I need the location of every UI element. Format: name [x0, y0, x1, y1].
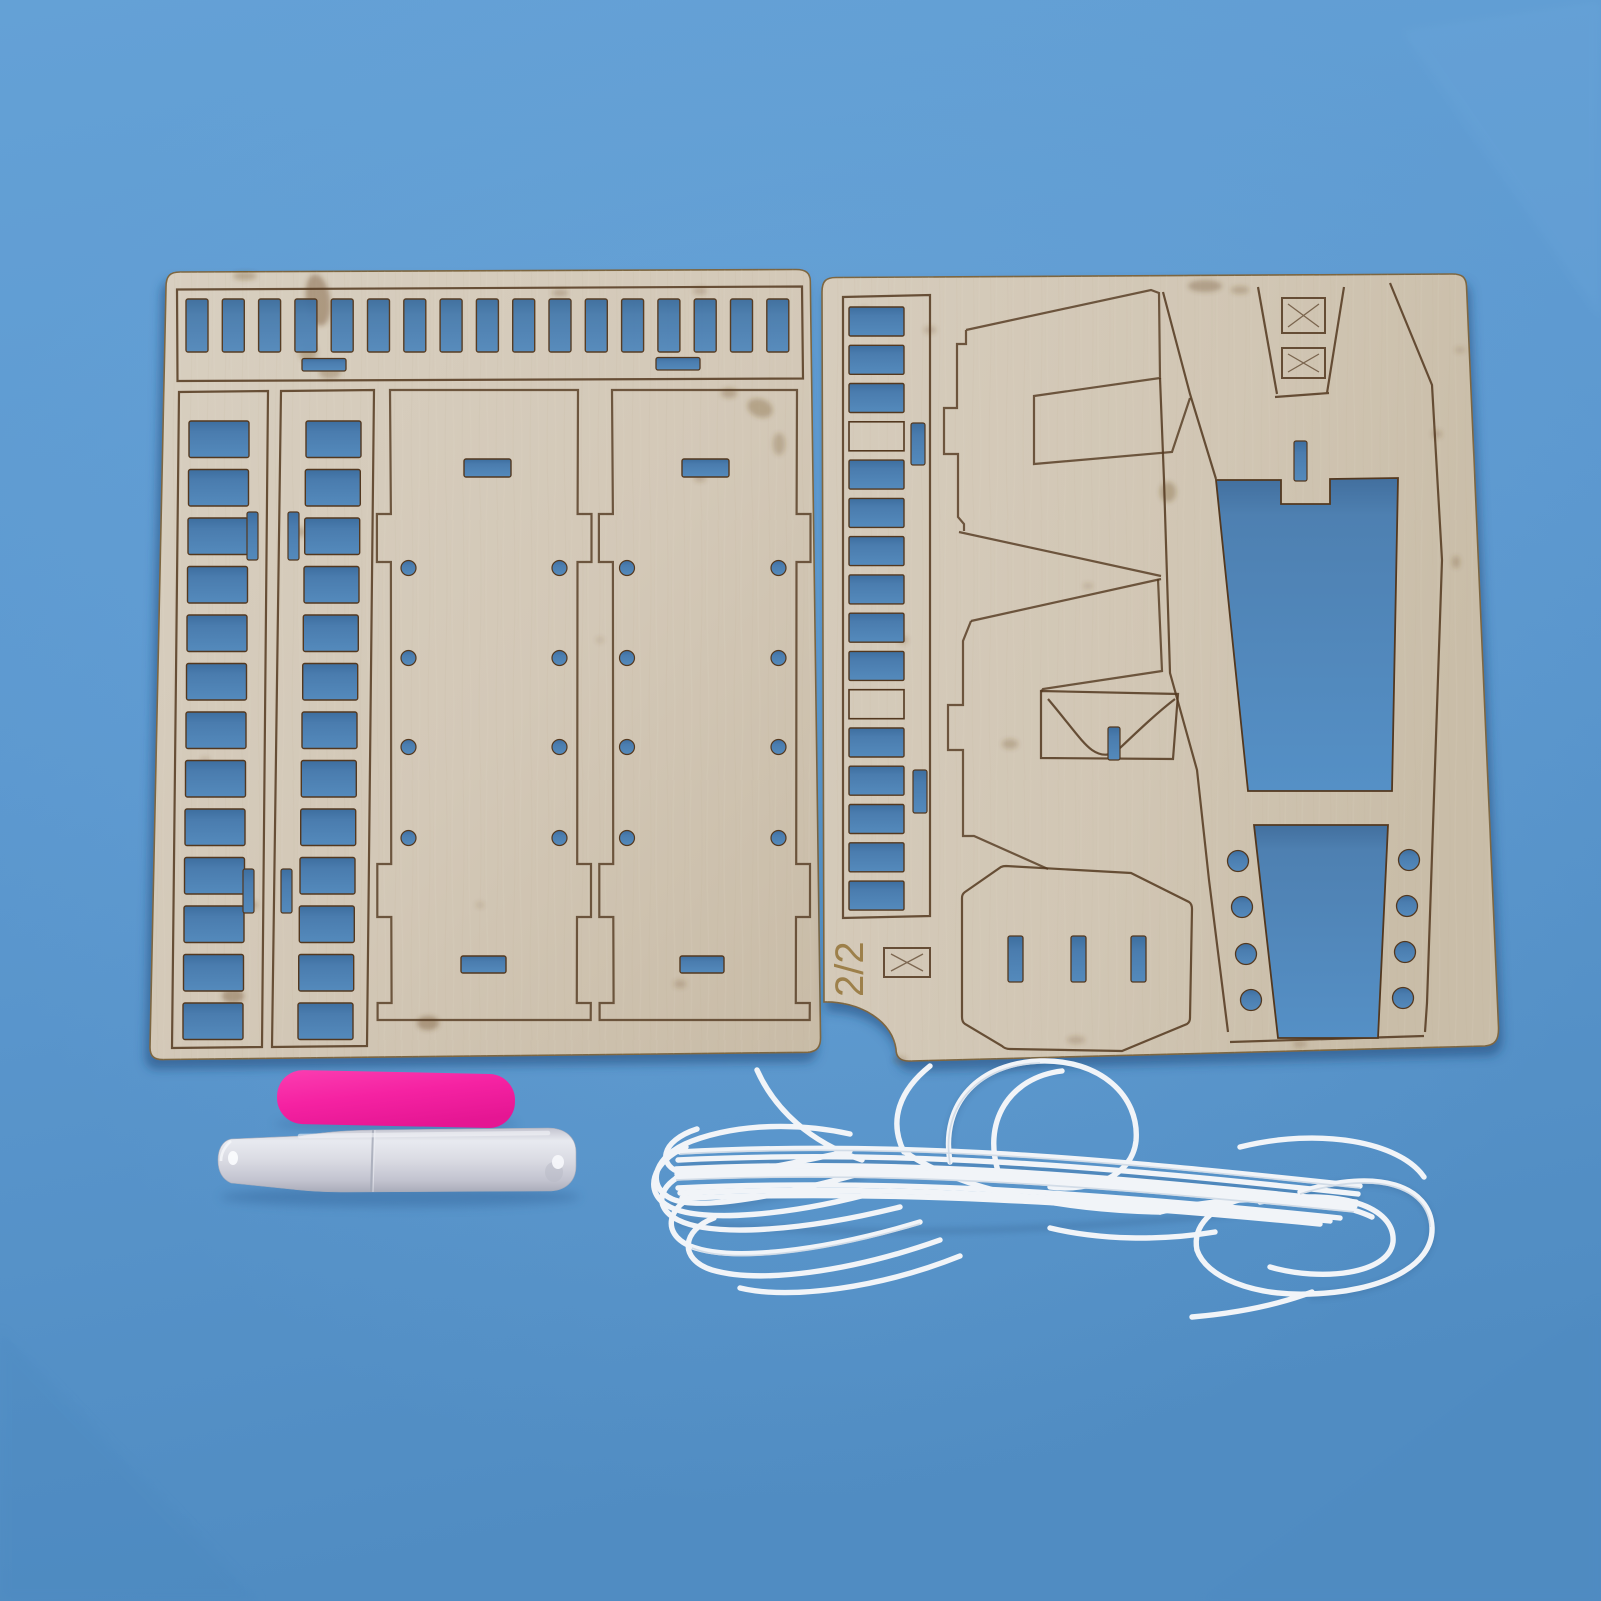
svg-text:2/2: 2/2 [828, 941, 872, 997]
